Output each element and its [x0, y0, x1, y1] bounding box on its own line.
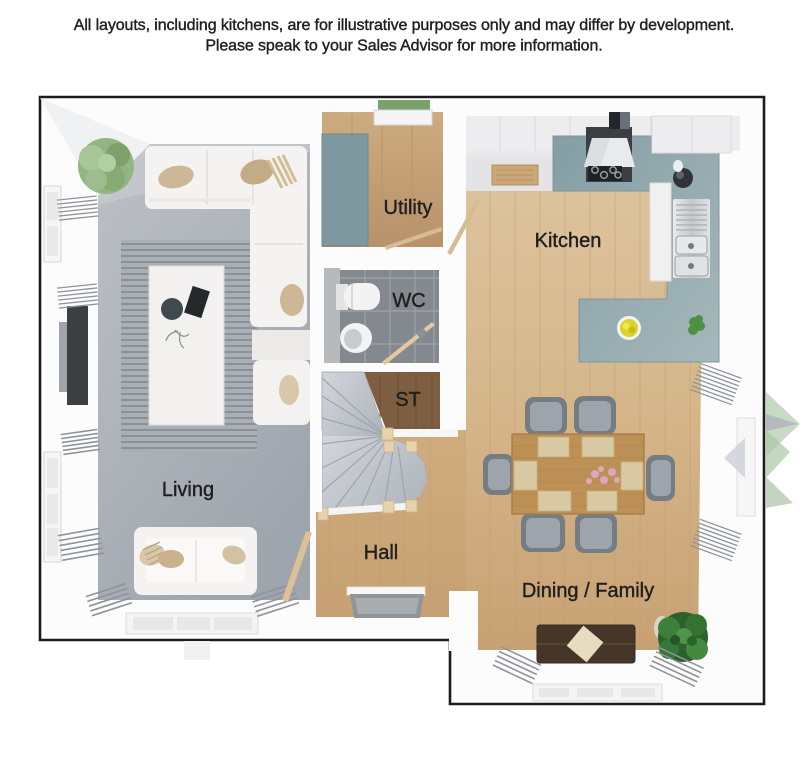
svg-text:Dining / Family: Dining / Family: [522, 580, 654, 602]
svg-text:All layouts, including kitchen: All layouts, including kitchens, are for…: [74, 17, 734, 34]
svg-text:WC: WC: [392, 290, 425, 312]
svg-text:Kitchen: Kitchen: [535, 230, 602, 252]
svg-text:Hall: Hall: [364, 542, 398, 564]
svg-text:Living: Living: [162, 479, 214, 501]
svg-text:ST: ST: [395, 389, 421, 411]
svg-text:Please speak to your Sales Adv: Please speak to your Sales Advisor for m…: [205, 38, 602, 55]
svg-text:Utility: Utility: [384, 197, 433, 219]
